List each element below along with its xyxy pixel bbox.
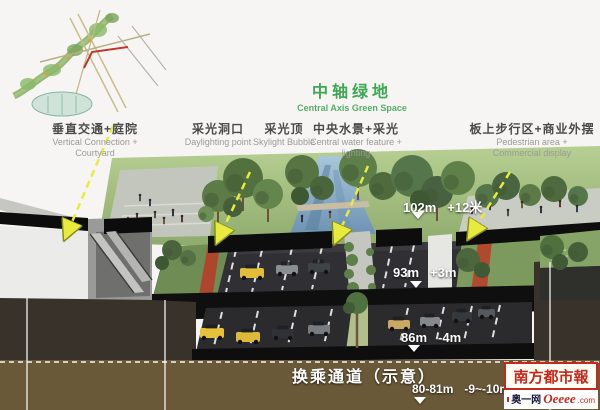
label-vertical-connection: 垂直交通+庭院 Vertical Connection + Courtyard xyxy=(52,120,138,159)
level-lower-road-marker xyxy=(408,345,420,352)
newspaper-name: 南方都市報 xyxy=(513,366,588,387)
newspaper-watermark: 南方都市報 奥一网 Oeeee .com xyxy=(504,362,598,409)
red-square-icon xyxy=(507,397,509,402)
website-line: 奥一网 Oeeee .com xyxy=(504,390,598,409)
website-tld: .com xyxy=(578,396,595,405)
infographic-stage: 中轴绿地 Central Axis Green Space 垂直交通+庭院 Ve… xyxy=(0,0,600,410)
level-ground-marker xyxy=(412,212,424,219)
website-cn: 奥一网 xyxy=(511,391,541,406)
label-daylight-opening: 采光洞口 Daylighting point xyxy=(185,120,252,148)
level-transfer-corridor-marker xyxy=(414,397,426,404)
main-title: 中轴绿地 Central Axis Green Space xyxy=(297,78,407,113)
label-central-water: 中央水景+采光 Central water feature + lighting xyxy=(310,120,402,159)
level-upper-road: 93m+3m xyxy=(393,265,456,280)
label-pedestrian-area: 板上步行区+商业外摆 Pedestrian area + Commercial … xyxy=(469,120,594,159)
newspaper-logo-box: 南方都市報 xyxy=(504,362,598,390)
level-upper-road-marker xyxy=(410,281,422,288)
label-skylight: 采光顶 Skylight Bubble xyxy=(253,120,315,148)
cross-section-rendering xyxy=(0,0,600,410)
right-terrace xyxy=(540,230,600,300)
website-en: Oeeee xyxy=(543,391,575,407)
main-title-en: Central Axis Green Space xyxy=(297,103,407,113)
level-transfer-corridor: 80-81m-9~-10m xyxy=(412,382,510,396)
main-title-zh: 中轴绿地 xyxy=(297,78,407,102)
level-lower-road: 86m-4m xyxy=(401,330,461,345)
